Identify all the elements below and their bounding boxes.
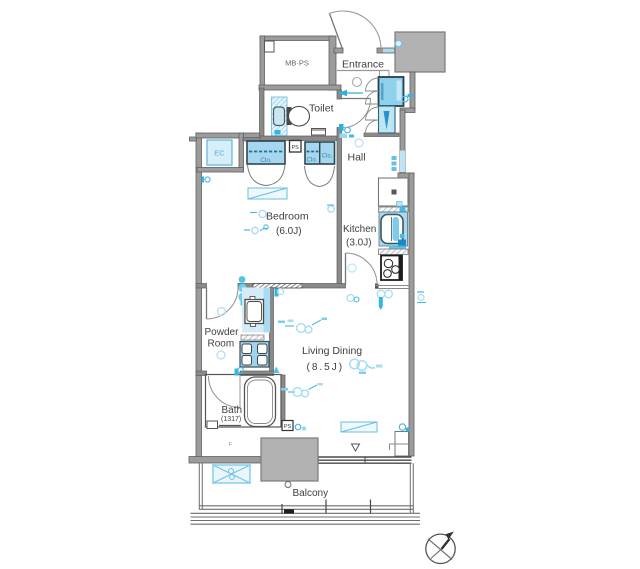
svg-text:Entrance: Entrance [342,59,384,71]
svg-text:MB·PS: MB·PS [285,59,309,68]
svg-text:(3.0J): (3.0J) [346,238,372,249]
svg-text:Clo.: Clo. [260,157,272,164]
svg-text:Balcony: Balcony [293,488,329,499]
svg-text:(6.0J): (6.0J) [276,226,302,237]
svg-text:Clo.: Clo. [307,158,318,164]
svg-text:Kitchen: Kitchen [343,224,376,235]
svg-text:Hall: Hall [348,152,366,164]
svg-text:Clo.: Clo. [322,154,333,160]
svg-text:Room: Room [208,339,235,350]
svg-text:Living Dining: Living Dining [302,345,362,357]
svg-text:PS: PS [292,145,300,151]
svg-text:(8.5J): (8.5J) [307,362,345,373]
svg-text:Bath: Bath [222,405,243,416]
svg-text:EC: EC [214,149,225,158]
svg-text:Powder: Powder [205,327,240,338]
svg-text:Toilet: Toilet [309,103,334,115]
svg-text:Bedroom: Bedroom [266,211,309,223]
svg-text:(1317): (1317) [221,416,241,423]
svg-text:PS: PS [284,424,292,430]
